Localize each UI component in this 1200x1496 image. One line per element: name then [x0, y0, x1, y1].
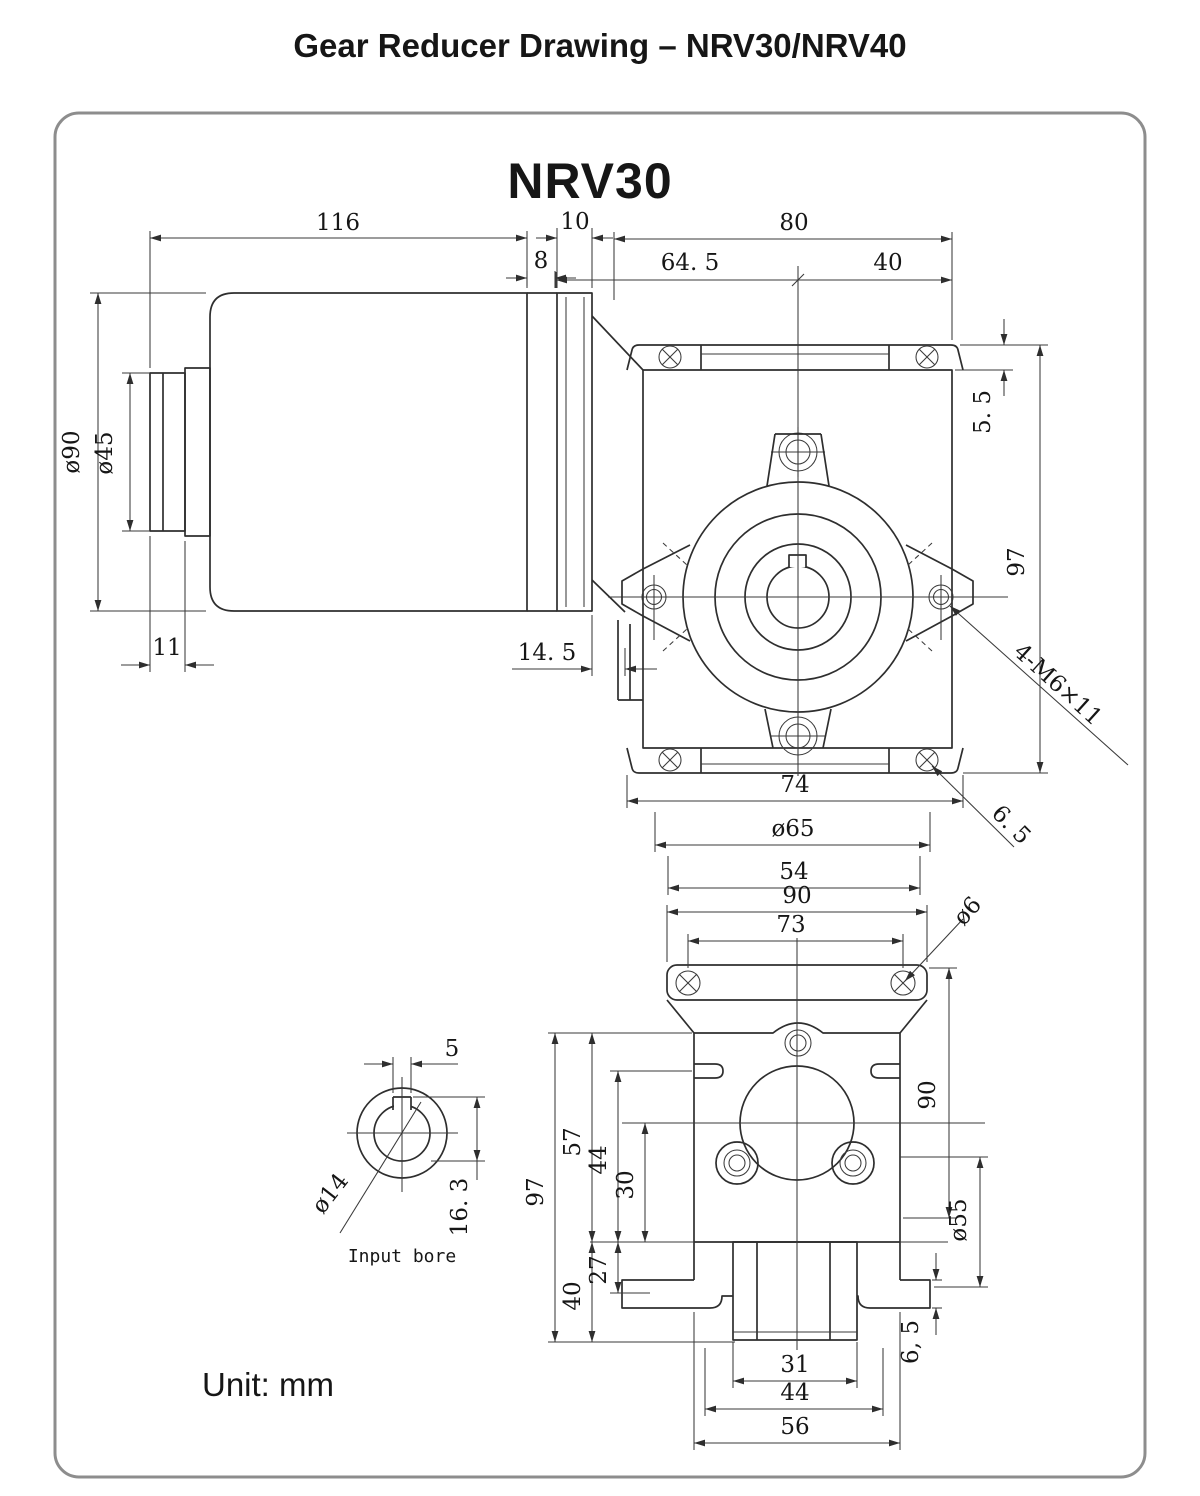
dim-5-5: 5. 5: [970, 390, 996, 434]
dim-80: 80: [779, 210, 808, 236]
dim-dia45: ø45: [92, 431, 118, 474]
dim-6-5-foot: 6, 5: [898, 1320, 924, 1364]
dim-54: 54: [779, 859, 808, 885]
model-label: NRV30: [507, 153, 672, 209]
dim-64-5: 64. 5: [661, 250, 720, 276]
dim-31: 31: [780, 1352, 809, 1378]
drawing-page: Gear Reducer Drawing – NRV30/NRV40 NRV30…: [0, 0, 1200, 1496]
dim-40: 40: [873, 250, 902, 276]
dim-30: 30: [613, 1170, 639, 1199]
input-bore-caption: Input bore: [348, 1246, 456, 1267]
dim-90-right: 90: [915, 1080, 941, 1109]
dim-73: 73: [776, 912, 805, 938]
dim-40: 40: [560, 1281, 586, 1310]
unit-label: Unit: mm: [202, 1366, 334, 1403]
dim-97-bottom: 97: [523, 1177, 549, 1206]
dim-dia90: ø90: [59, 430, 85, 473]
dim-10: 10: [560, 209, 589, 235]
dim-dia55: ø55: [946, 1198, 972, 1241]
dim-11: 11: [152, 635, 181, 661]
dim-97-front: 97: [1004, 547, 1030, 576]
dim-44-bottom: 44: [780, 1380, 809, 1406]
gear-reducer-drawing: Gear Reducer Drawing – NRV30/NRV40 NRV30…: [0, 0, 1200, 1496]
dim-74: 74: [780, 772, 809, 798]
dim-16-3: 16. 3: [447, 1178, 473, 1237]
dim-8: 8: [534, 248, 549, 274]
page-title: Gear Reducer Drawing – NRV30/NRV40: [293, 27, 906, 64]
dim-57: 57: [560, 1127, 586, 1156]
dim-56: 56: [780, 1414, 809, 1440]
dim-44-left: 44: [586, 1145, 612, 1174]
dim-key-5: 5: [445, 1036, 460, 1062]
dim-27: 27: [586, 1255, 612, 1284]
dim-116: 116: [316, 210, 360, 236]
dim-90-top: 90: [782, 883, 811, 909]
dim-dia65: ø65: [771, 816, 814, 842]
dim-14-5: 14. 5: [518, 640, 577, 666]
